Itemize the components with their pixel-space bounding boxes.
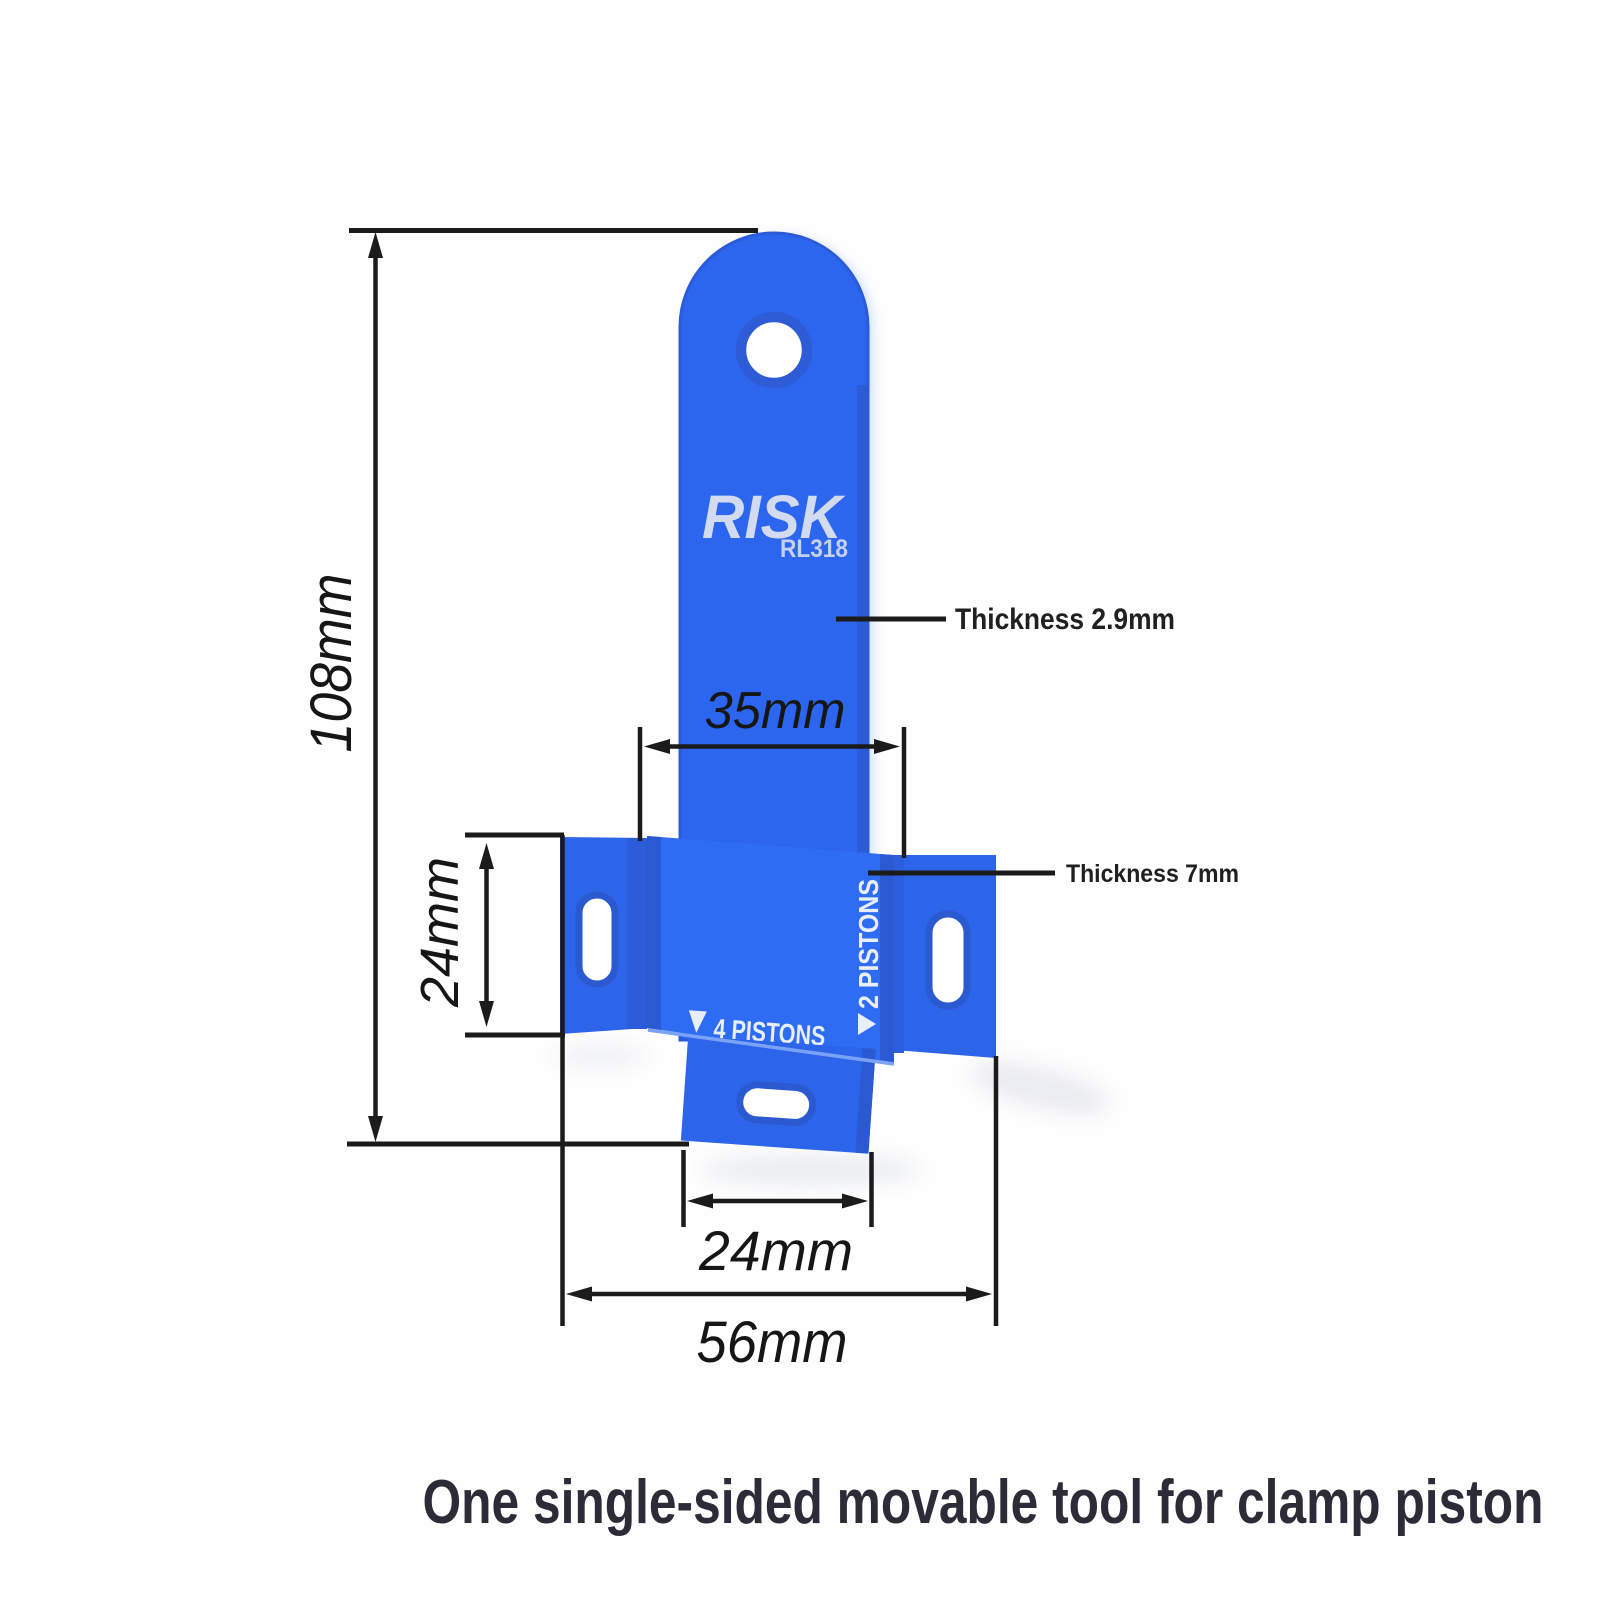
svg-text:Thickness 2.9mm: Thickness 2.9mm xyxy=(955,603,1175,636)
svg-text:2 PISTONS: 2 PISTONS xyxy=(853,879,884,1009)
svg-text:56mm: 56mm xyxy=(697,1310,848,1375)
svg-text:One single-sided movable tool: One single-sided movable tool for clamp … xyxy=(423,1468,1544,1537)
svg-text:35mm: 35mm xyxy=(705,682,846,740)
svg-text:RL318: RL318 xyxy=(780,535,848,563)
svg-text:Thickness 7mm: Thickness 7mm xyxy=(1066,860,1239,888)
svg-text:108mm: 108mm xyxy=(299,574,364,753)
svg-text:24mm: 24mm xyxy=(410,857,470,1008)
svg-text:24mm: 24mm xyxy=(698,1219,853,1282)
